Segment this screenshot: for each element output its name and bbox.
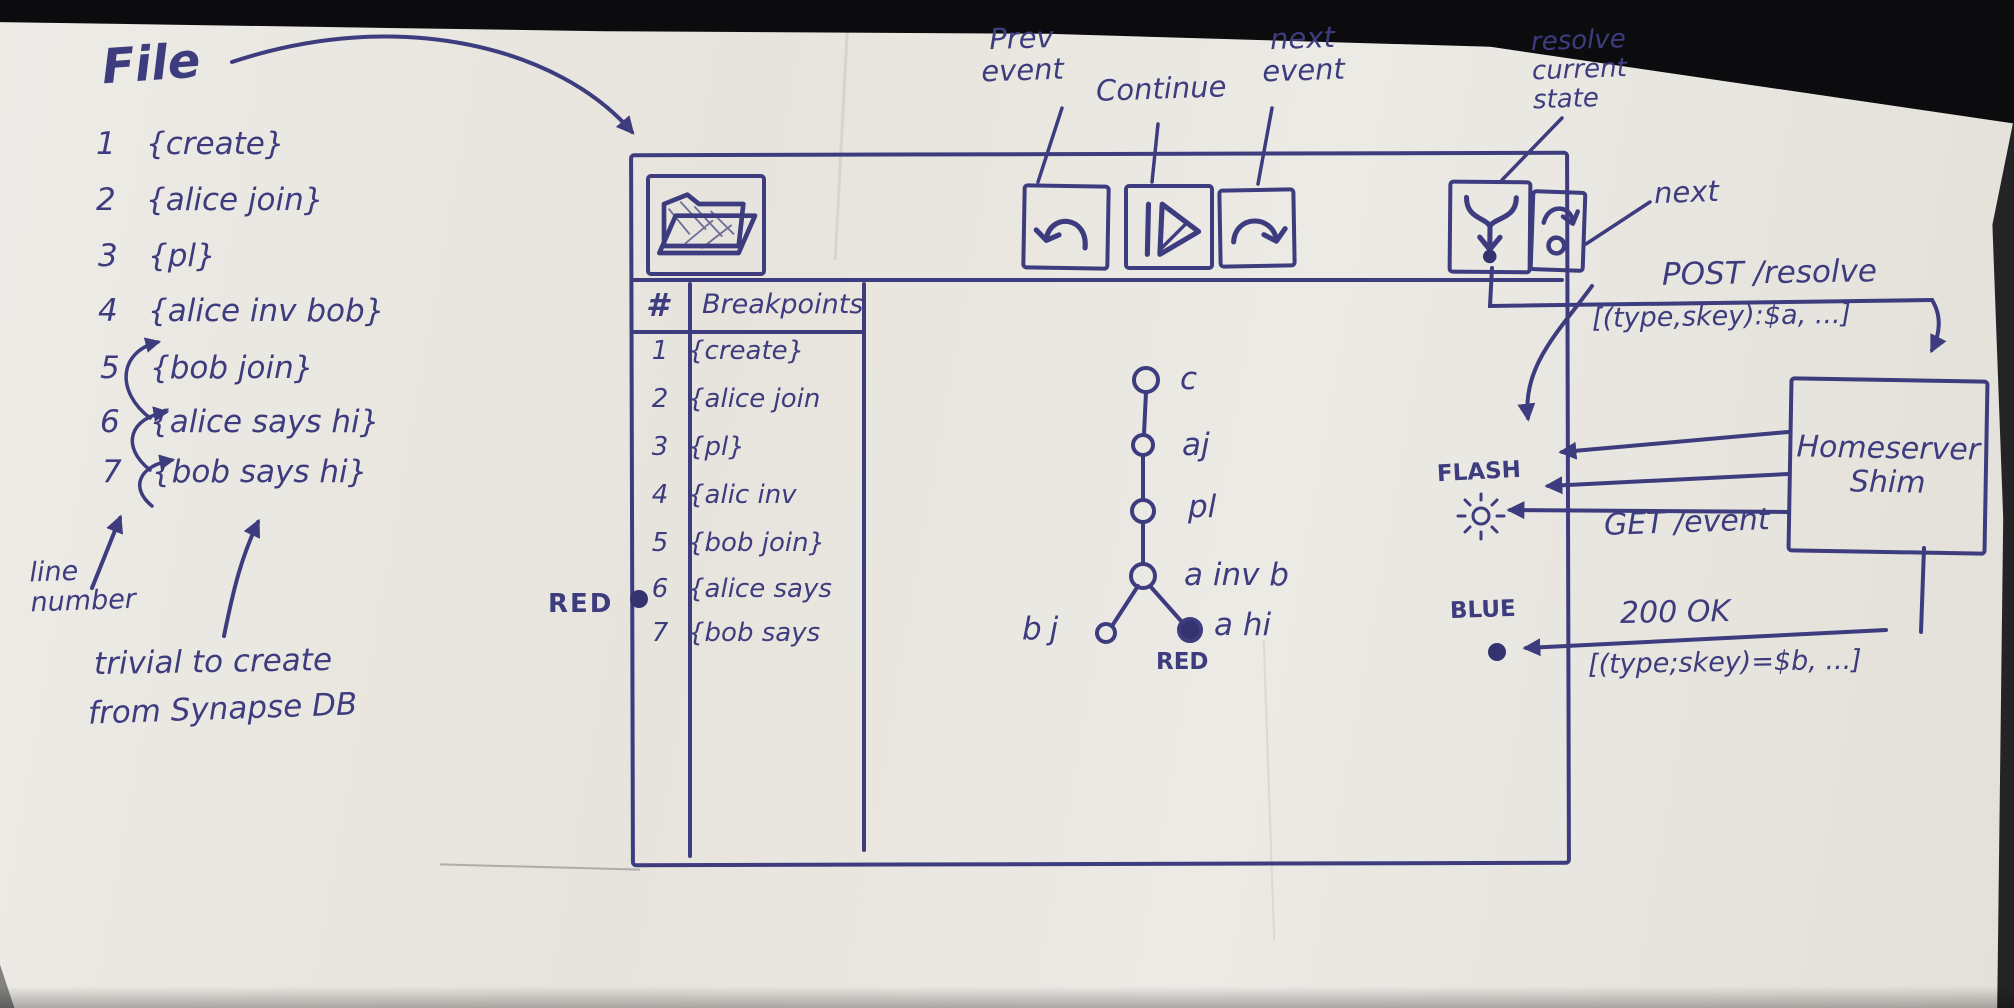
next-event-label: next event	[1242, 20, 1364, 89]
file-title: File	[100, 35, 202, 95]
shim-to-window-arrows	[1510, 432, 1788, 512]
graph-node-a-inv-b	[1131, 564, 1155, 588]
file-line: 5{bob join}	[100, 350, 313, 386]
toolbar-label-pointers	[1038, 108, 1650, 244]
flash-icon	[1458, 494, 1504, 539]
line-number-note: line number	[29, 554, 171, 619]
continue-label: Continue	[1095, 69, 1256, 107]
prev-event-label: Prev event	[951, 20, 1093, 90]
blue-label: BLUE	[1450, 597, 1517, 625]
file-line: 6{alice says hi}	[100, 404, 379, 440]
graph-node-label-a-inv-b: a inv b	[1184, 558, 1289, 593]
graph-edges	[1112, 392, 1182, 626]
next-step-label: next	[1653, 175, 1719, 210]
graph-nodes[interactable]	[1097, 368, 1201, 642]
trivial-note-line1: trivial to create	[94, 643, 333, 682]
breakpoint-row[interactable]: 4{alic inv	[632, 480, 860, 510]
graph-node-label-pl: pl	[1188, 490, 1216, 525]
ok-payload-label: [(type;skey)=$b, ...]	[1588, 646, 1862, 681]
ok-200-label: 200 OK	[1620, 595, 1731, 631]
post-resolve-label: POST /resolve	[1662, 254, 1878, 292]
file-line: 7{bob says hi}	[102, 454, 367, 490]
graph-node-c	[1134, 368, 1158, 392]
post-down-arrow	[1932, 300, 1939, 350]
graph-node-pl	[1132, 500, 1154, 522]
breakpoint-row[interactable]: 5{bob join}	[632, 528, 860, 558]
graph-node-label-c: c	[1180, 362, 1197, 397]
file-to-window-arrow	[232, 37, 632, 132]
bp-col-header: Breakpoints	[702, 290, 863, 320]
breakpoint-row[interactable]: 2{alice join	[632, 384, 860, 414]
graph-node-bj	[1097, 624, 1115, 642]
file-line: 4{alice inv bob}	[98, 293, 384, 329]
breakpoint-row[interactable]: 3{pl}	[632, 432, 860, 462]
post-payload-label: [(type,skey):$a, ...]	[1592, 300, 1852, 335]
resolve-state-label: resolve current state	[1531, 24, 1668, 116]
trivial-note-arrow	[224, 522, 258, 636]
graph-node-a-hi-red	[1179, 619, 1201, 641]
breakpoint-row[interactable]: 7{bob says	[632, 618, 860, 648]
graph-red-label: RED	[1156, 650, 1209, 676]
file-line: 3{pl}	[98, 238, 216, 274]
file-line: 1{create}	[96, 126, 285, 162]
graph-node-aj	[1133, 435, 1153, 455]
shim-bottom-connector	[1921, 548, 1924, 632]
breakpoint-row-marked[interactable]: 6{alice says	[632, 574, 860, 604]
graph-node-label-a-hi: a hi	[1214, 608, 1271, 643]
graph-node-label-aj: aj	[1182, 428, 1210, 463]
bp-col-num-header: #	[646, 288, 668, 324]
red-marker-label: RED	[548, 590, 613, 619]
get-event-label: GET /event	[1603, 503, 1770, 542]
graph-node-label-bj: bj	[1022, 612, 1066, 647]
breakpoint-row[interactable]: 1{create}	[632, 336, 860, 366]
file-line: 2{alice join}	[96, 182, 323, 218]
flash-label: FLASH	[1436, 458, 1521, 488]
blue-event-dot	[1488, 643, 1506, 661]
